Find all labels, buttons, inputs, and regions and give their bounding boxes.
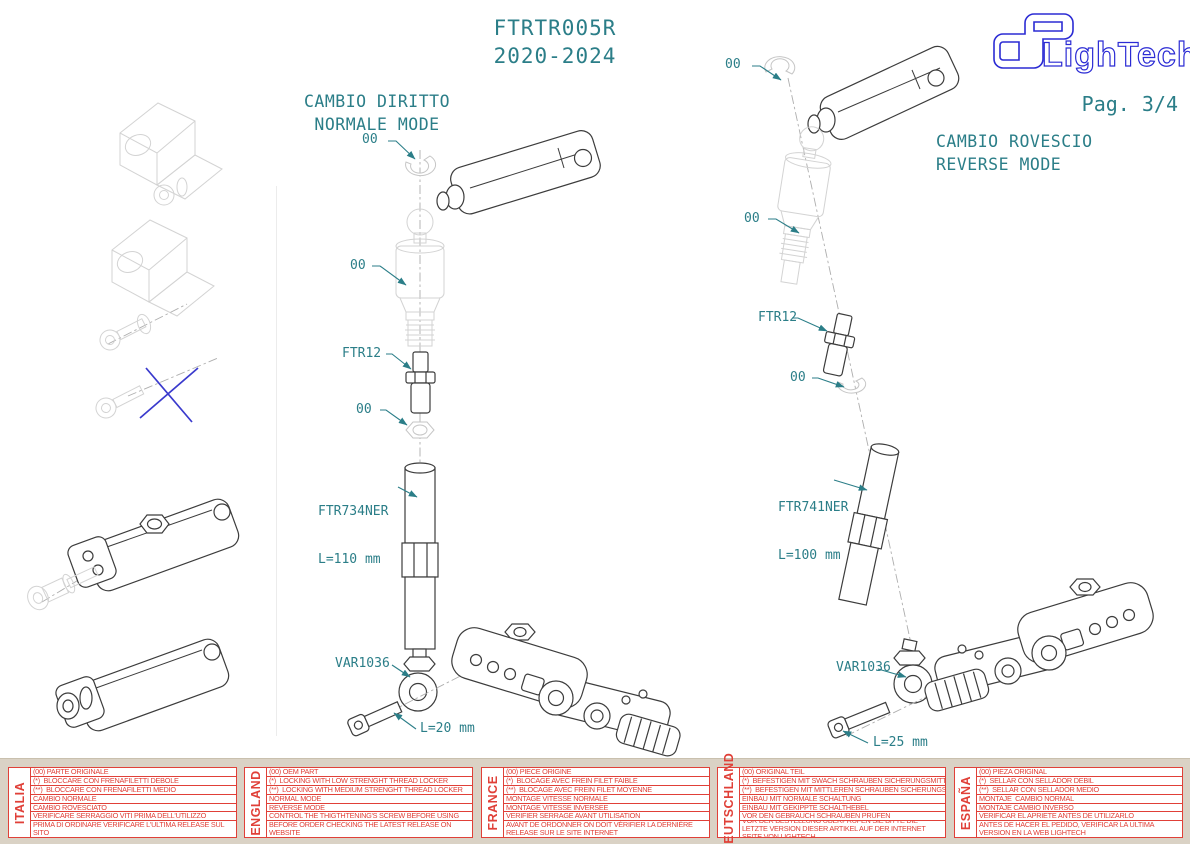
notes-section-espana: ESPAÑA (00) PIEZA ORIGINAL (*) SELLAR CO… — [954, 767, 1183, 838]
note-row: CONTROL THE THIGTHTENING'S SCREW BEFORE … — [267, 812, 472, 821]
notes-strip: ITALIA (00) PARTE ORIGINALE (*) BLOCCARE… — [0, 758, 1190, 844]
callout-stud: FTR12 — [342, 346, 381, 362]
note-row: MONTAGE VITESSE INVERSEE — [504, 804, 709, 813]
exploded-diagrams: LighTech — [0, 0, 1190, 844]
callout-actuator: 00 — [744, 211, 760, 227]
rod-part — [402, 463, 438, 649]
note-row: VOR DEN GEBRAUCH SCHRAUBEN PRÜFEN — [740, 812, 945, 821]
note-footer: BEFORE ORDER CHECKING THE LATEST RELEASE… — [267, 821, 472, 837]
note-row: EINBAU MIT NORMALE SCHALTUNG — [740, 795, 945, 804]
language-label: ENGLAND — [249, 770, 263, 835]
oem-bracket-assembled — [120, 103, 222, 205]
callout-bolt-len: L=25 mm — [873, 735, 928, 751]
callout-rodend: VAR1036 — [836, 660, 891, 676]
clip-part-2 — [838, 378, 866, 393]
brand-text: LighTech — [1042, 36, 1190, 74]
note-row: MONTAJE CAMBIO NORMAL — [977, 795, 1182, 804]
note-row: (00) PIECE ORIGINE — [504, 768, 709, 777]
note-footer: AVANT DE ORDONNER ON DOIT VÉRIFIER LA DE… — [504, 821, 709, 837]
nut-part — [406, 422, 434, 438]
callout-clip: 00 — [362, 132, 378, 148]
note-row: (**) SELLAR CON SELLADOR MEDIO — [977, 786, 1182, 795]
rocker-arm — [447, 623, 682, 758]
oem-bolt-crossed-out — [93, 358, 218, 422]
notes-section-deutschland: DEUTSCHLAND (00) ORIGINAL TEIL (*) BEFES… — [717, 767, 946, 838]
bolt-part — [347, 699, 404, 737]
notes-section-italia: ITALIA (00) PARTE ORIGINALE (*) BLOCCARE… — [8, 767, 237, 838]
note-row: CAMBIO NORMALE — [31, 795, 236, 804]
note-row: VERIFICARE SERRAGGIO VITI PRIMA DELL'UTI… — [31, 812, 236, 821]
note-row: (**) BLOCCARE CON FRENAFILETTI MEDIO — [31, 786, 236, 795]
callout-rod: FTR734NER L=110 mm — [318, 472, 388, 600]
notes-section-france: FRANCE (00) PIECE ORIGINE (*) BLOCAGE AV… — [481, 767, 710, 838]
note-row: (*) BLOCCARE CON FRENAFILETTI DEBOLE — [31, 777, 236, 786]
note-row: (*) LOCKING WITH LOW STRENGHT THREAD LOC… — [267, 777, 472, 786]
note-row: (**) BLOCAGE AVEC FREIN FILET MOYENNE — [504, 786, 709, 795]
cross-icon — [140, 368, 198, 422]
product-code: FTRTR005R — [440, 14, 670, 42]
callout-clip: 00 — [725, 57, 741, 73]
shift-clamp — [437, 128, 603, 217]
rocker-arm — [923, 578, 1158, 713]
note-row: MONTAJE CAMBIO INVERSO — [977, 804, 1182, 813]
normal-mode-assembly — [347, 128, 683, 758]
note-row: EINBAU MIT GEKIPPTE SCHALTHEBEL — [740, 804, 945, 813]
callout-clip2: 00 — [790, 370, 806, 386]
language-label: ESPAÑA — [959, 775, 973, 829]
clamp-arm-assembled — [54, 636, 232, 734]
note-row: (00) PARTE ORIGINALE — [31, 768, 236, 777]
language-label: FRANCE — [486, 775, 500, 830]
note-row: (**) LOCKING WITH MEDIUM STRENGHT THREAD… — [267, 786, 472, 795]
note-row: (**) BEFESTIGEN MIT MITTLEREN SCHRAUBEN … — [740, 786, 945, 795]
model-years: 2020-2024 — [440, 42, 670, 70]
note-row: (*) BEFESTIGEN MIT SWACH SCHRAUBEN SICHE… — [740, 777, 945, 786]
actuator-part — [766, 123, 836, 286]
callout-stud: FTR12 — [758, 310, 797, 326]
page-title: FTRTR005R 2020-2024 — [440, 14, 670, 70]
note-footer: PRIMA DI ORDINARE VERIFICARE L'ULTIMA RE… — [31, 821, 236, 837]
page-number: Pag. 3/4 — [1058, 92, 1178, 116]
clip-part — [406, 156, 436, 176]
note-row: CAMBIO ROVESCIATO — [31, 804, 236, 813]
note-row: (*) SELLAR CON SELLADOR DEBIL — [977, 777, 1182, 786]
note-row: VERIFIER SERRAGE AVANT UTILISATION — [504, 812, 709, 821]
note-footer: ANTES DE HACER EL PEDIDO, VERIFICAR LA U… — [977, 821, 1182, 837]
callout-nut: 00 — [356, 402, 372, 418]
notes-section-england: ENGLAND (00) OEM PART (*) LOCKING WITH L… — [244, 767, 473, 838]
instruction-sheet-page: LighTech FTRTR005R 2020-2024 Pag. 3/4 CA… — [0, 0, 1190, 844]
note-row: (00) OEM PART — [267, 768, 472, 777]
stud-part — [818, 312, 859, 378]
callout-rod: FTR741NER L=100 mm — [778, 468, 848, 596]
note-row: MONTAGE VITESSE NORMALE — [504, 795, 709, 804]
normal-mode-title: CAMBIO DIRITTO NORMALE MODE — [292, 90, 462, 136]
stud-part — [406, 352, 435, 413]
note-row: (*) BLOCAGE AVEC FREIN FILET FAIBLE — [504, 777, 709, 786]
note-row: VERIFICAR EL APRIETE ANTES DE UTILIZARLO — [977, 812, 1182, 821]
rodend-part — [399, 649, 437, 711]
language-label: ITALIA — [13, 781, 27, 823]
clip-part — [765, 57, 795, 74]
column-divider — [276, 186, 277, 736]
shift-clamp — [808, 42, 963, 143]
language-label: DEUTSCHLAND — [722, 752, 736, 844]
note-row: (00) ORIGINAL TEIL — [740, 768, 945, 777]
note-row: REVERSE MODE — [267, 804, 472, 813]
lightech-logo: LighTech — [994, 14, 1190, 74]
callout-rodend: VAR1036 — [335, 656, 390, 672]
note-row: (00) PIEZA ORIGINAL — [977, 768, 1182, 777]
note-footer: VOR DER BESTELLUNG ÜBERPRÜFEN SIE BITTE … — [740, 821, 945, 837]
note-row: NORMAL MODE — [267, 795, 472, 804]
clamp-arm-exploded — [24, 496, 242, 613]
oem-bracket-exploded — [97, 220, 214, 353]
callout-bolt-len: L=20 mm — [420, 721, 475, 737]
reverse-mode-title: CAMBIO ROVESCIO REVERSE MODE — [936, 130, 1116, 176]
callout-actuator: 00 — [350, 258, 366, 274]
